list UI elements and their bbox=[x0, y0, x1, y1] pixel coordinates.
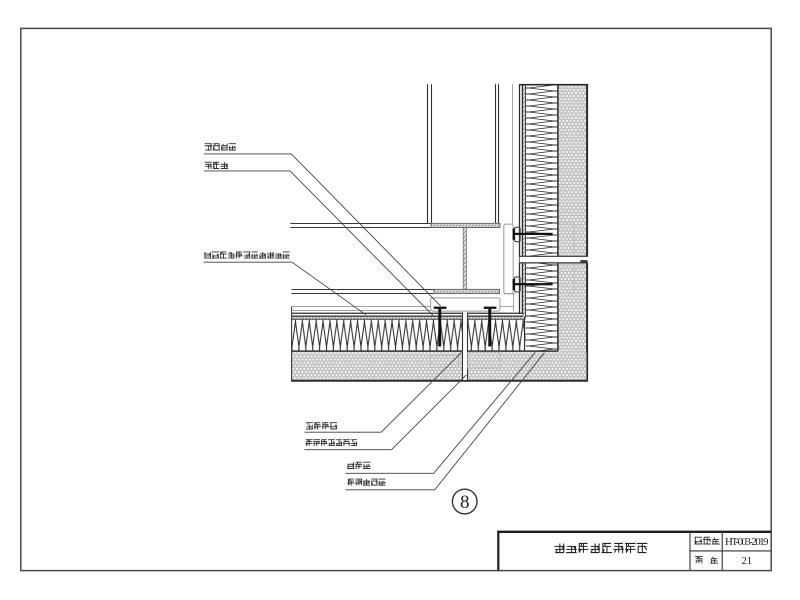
svg-text:8: 8 bbox=[460, 492, 470, 513]
svg-text:21: 21 bbox=[741, 555, 752, 567]
svg-text:HT-003-2019: HT-003-2019 bbox=[725, 536, 769, 548]
